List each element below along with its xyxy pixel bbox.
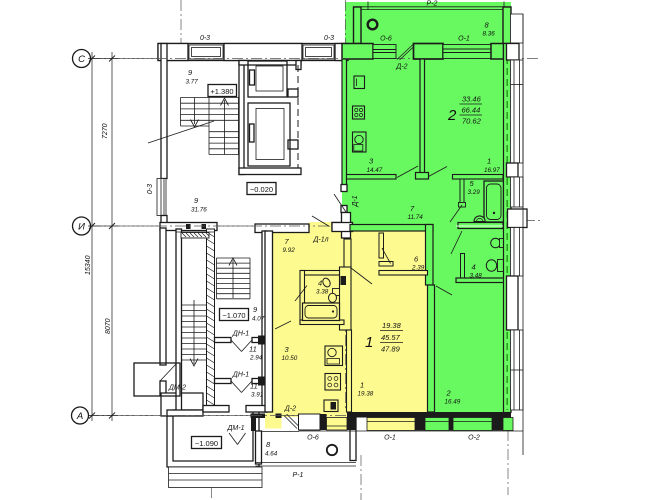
svg-text:2: 2	[446, 389, 452, 398]
svg-text:+1.380: +1.380	[210, 87, 233, 96]
svg-text:ДН-1: ДН-1	[232, 372, 249, 379]
svg-text:19.38: 19.38	[358, 391, 374, 398]
svg-text:ДМ-1: ДМ-1	[227, 425, 245, 432]
svg-text:Д-2: Д-2	[395, 64, 407, 71]
svg-text:3.29: 3.29	[468, 189, 481, 196]
svg-text:8070: 8070	[105, 318, 112, 334]
svg-text:2.39: 2.39	[411, 265, 425, 272]
svg-text:31.76: 31.76	[191, 207, 207, 214]
svg-text:2.94: 2.94	[249, 355, 263, 362]
svg-text:0-3: 0-3	[324, 35, 334, 42]
svg-text:1: 1	[487, 157, 491, 166]
svg-text:−1.090: −1.090	[195, 439, 218, 448]
svg-text:P-1: P-1	[293, 472, 304, 479]
svg-text:1: 1	[365, 334, 373, 351]
svg-text:7270: 7270	[102, 123, 109, 139]
svg-text:15340: 15340	[85, 255, 92, 275]
svg-text:1: 1	[360, 381, 364, 390]
svg-text:O-6: O-6	[307, 435, 319, 442]
svg-text:33.46: 33.46	[462, 95, 482, 104]
svg-text:3.77: 3.77	[186, 79, 199, 86]
svg-text:2: 2	[447, 107, 457, 124]
svg-text:16.97: 16.97	[484, 167, 500, 174]
svg-text:14.47: 14.47	[367, 167, 383, 174]
svg-text:O-2: O-2	[468, 435, 480, 442]
svg-text:3.48: 3.48	[470, 273, 483, 280]
svg-text:ДМ-2: ДМ-2	[168, 385, 186, 392]
svg-text:11: 11	[250, 382, 258, 391]
svg-text:O-6: O-6	[380, 36, 392, 43]
svg-text:ДН-1: ДН-1	[232, 331, 249, 338]
svg-text:4.64: 4.64	[265, 451, 278, 458]
svg-text:0-3: 0-3	[200, 35, 210, 42]
svg-text:3.91: 3.91	[251, 392, 263, 399]
svg-text:O-1: O-1	[384, 435, 396, 442]
svg-text:Д-1: Д-1	[352, 195, 359, 207]
svg-text:10.50: 10.50	[282, 355, 298, 362]
svg-text:3.38: 3.38	[316, 289, 329, 296]
svg-text:−1.070: −1.070	[222, 311, 245, 320]
svg-text:C: C	[78, 54, 85, 65]
svg-text:16.49: 16.49	[445, 399, 461, 406]
svg-text:O-1: O-1	[458, 36, 470, 43]
svg-text:И: И	[78, 222, 85, 233]
svg-text:11.74: 11.74	[408, 214, 424, 221]
svg-text:45.57: 45.57	[381, 333, 401, 342]
svg-text:−0.020: −0.020	[250, 185, 273, 194]
svg-text:9.92: 9.92	[283, 247, 296, 254]
svg-text:Д-2: Д-2	[284, 406, 296, 413]
svg-text:47.89: 47.89	[381, 345, 401, 354]
svg-text:0-3: 0-3	[147, 184, 154, 194]
svg-text:A: A	[76, 411, 83, 422]
svg-text:11: 11	[249, 345, 257, 354]
svg-text:Д-1л: Д-1л	[312, 237, 328, 244]
svg-text:19.38: 19.38	[382, 321, 402, 330]
svg-text:4.07: 4.07	[252, 316, 265, 323]
svg-text:8.36: 8.36	[483, 31, 496, 38]
svg-text:66.44: 66.44	[462, 106, 481, 115]
svg-text:P-2: P-2	[427, 1, 438, 8]
svg-text:4: 4	[318, 279, 322, 288]
svg-text:70.62: 70.62	[462, 117, 482, 126]
svg-text:4: 4	[472, 263, 476, 272]
